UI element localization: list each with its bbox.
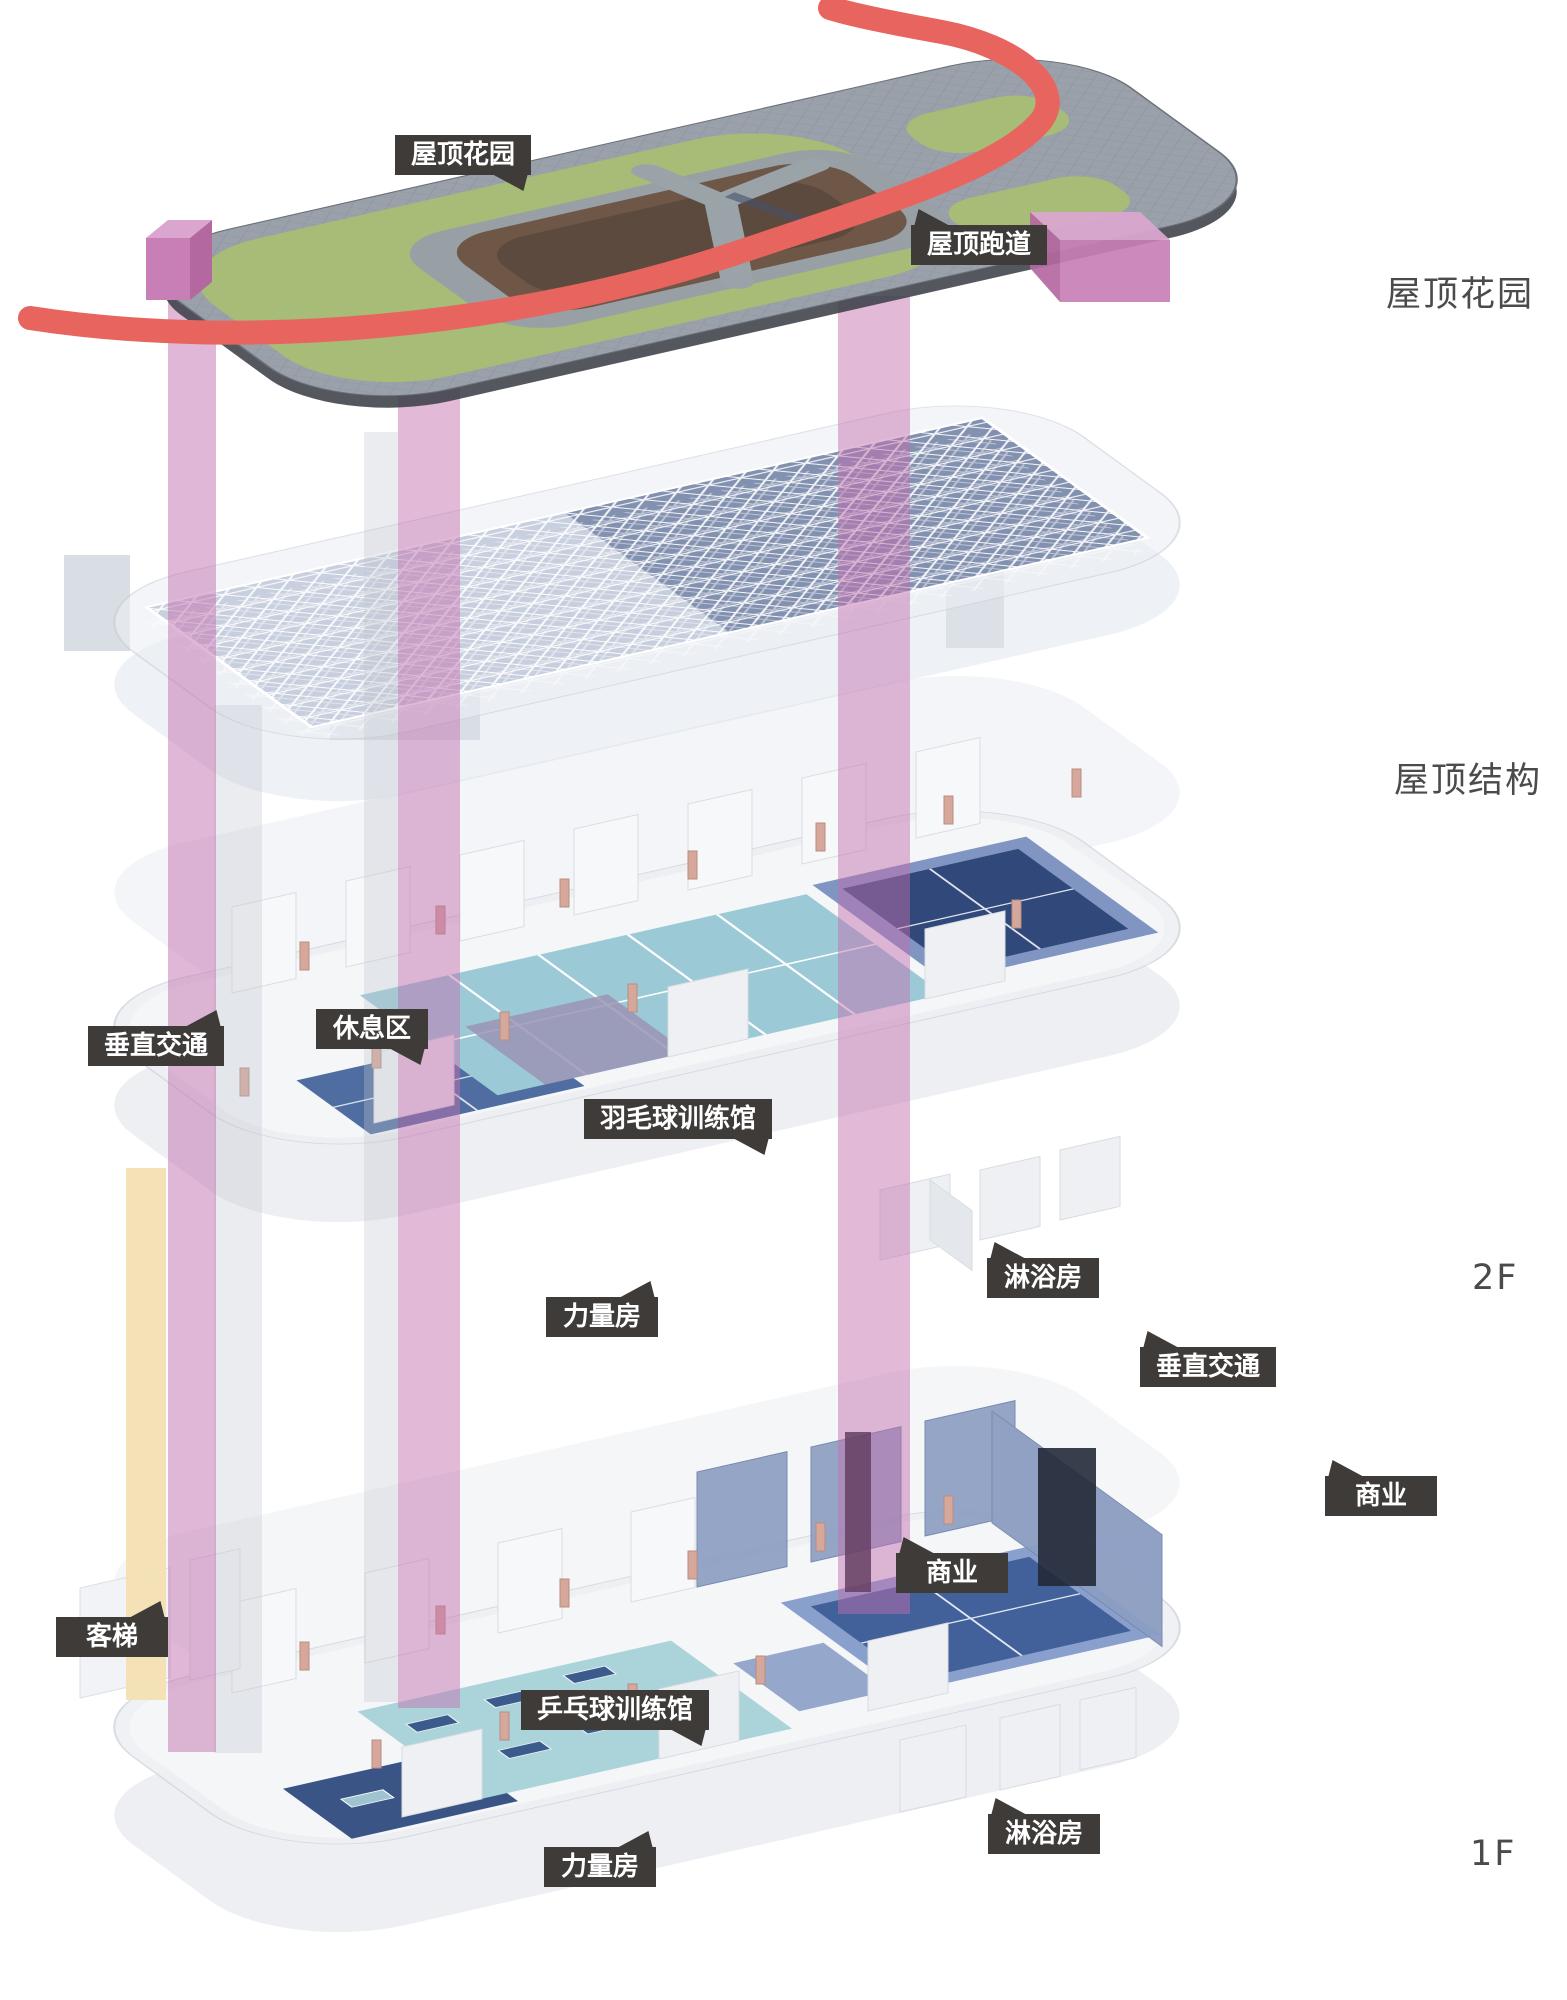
callout-commercial-mid-text: 商业 [926, 1558, 978, 1588]
callout-shower-room-1f-text: 淋浴房 [1005, 1819, 1083, 1849]
level-annotation-1f: 1F [1470, 1834, 1516, 1874]
roof-shaft-box-left [146, 220, 212, 300]
exploded-axonometric-diagram: 屋顶花园 屋顶跑道 垂直交通 休息区 羽毛球训练馆 力量房 淋浴房 垂直交通 商… [0, 0, 1567, 2000]
level-annotation-roof-garden: 屋顶花园 [1386, 266, 1534, 317]
callout-vertical-circulation-1f: 垂直交通 [1140, 1347, 1276, 1387]
callout-shower-room-2f: 淋浴房 [987, 1258, 1099, 1298]
shaft-pink-middle [398, 300, 460, 1708]
callout-strength-room-2f-text: 力量房 [563, 1302, 641, 1332]
callout-badminton-hall-text: 羽毛球训练馆 [600, 1104, 756, 1134]
callout-passenger-elevator: 客梯 [56, 1617, 168, 1657]
callout-rest-area-text: 休息区 [333, 1014, 411, 1044]
callout-commercial-right: 商业 [1325, 1476, 1437, 1516]
callout-passenger-elevator-text: 客梯 [86, 1622, 138, 1652]
callout-table-tennis-hall: 乒乓球训练馆 [521, 1690, 709, 1730]
callout-shower-room-1f: 淋浴房 [988, 1814, 1100, 1854]
callout-rest-area: 休息区 [316, 1009, 428, 1049]
level-annotation-roof-structure: 屋顶结构 [1394, 752, 1542, 803]
callout-vertical-circulation-2f-text: 垂直交通 [104, 1031, 208, 1061]
callout-commercial-mid: 商业 [896, 1553, 1008, 1593]
callout-strength-room-1f-text: 力量房 [561, 1852, 639, 1882]
callout-strength-room-1f: 力量房 [544, 1847, 656, 1887]
callout-roof-track: 屋顶跑道 [911, 225, 1047, 265]
callout-commercial-right-text: 商业 [1355, 1481, 1407, 1511]
shaft-pink-right [838, 296, 910, 1614]
shaft-pink-left [168, 258, 216, 1752]
level-annotation-2f: 2F [1472, 1258, 1518, 1298]
callout-roof-garden-text: 屋顶花园 [411, 140, 515, 170]
callout-badminton-hall: 羽毛球训练馆 [584, 1099, 772, 1139]
callout-vertical-circulation-1f-text: 垂直交通 [1156, 1352, 1260, 1382]
roof-shaft-box-right [1030, 212, 1170, 302]
callout-strength-room-2f: 力量房 [546, 1297, 658, 1337]
callout-shower-room-2f-text: 淋浴房 [1004, 1263, 1082, 1293]
roof-garden-layer [30, 8, 1285, 427]
building-render [0, 0, 1567, 2000]
callout-roof-garden: 屋顶花园 [395, 135, 531, 175]
callout-table-tennis-hall-text: 乒乓球训练馆 [537, 1695, 693, 1725]
callout-vertical-circulation-2f: 垂直交通 [88, 1026, 224, 1066]
callout-roof-track-text: 屋顶跑道 [927, 230, 1031, 260]
